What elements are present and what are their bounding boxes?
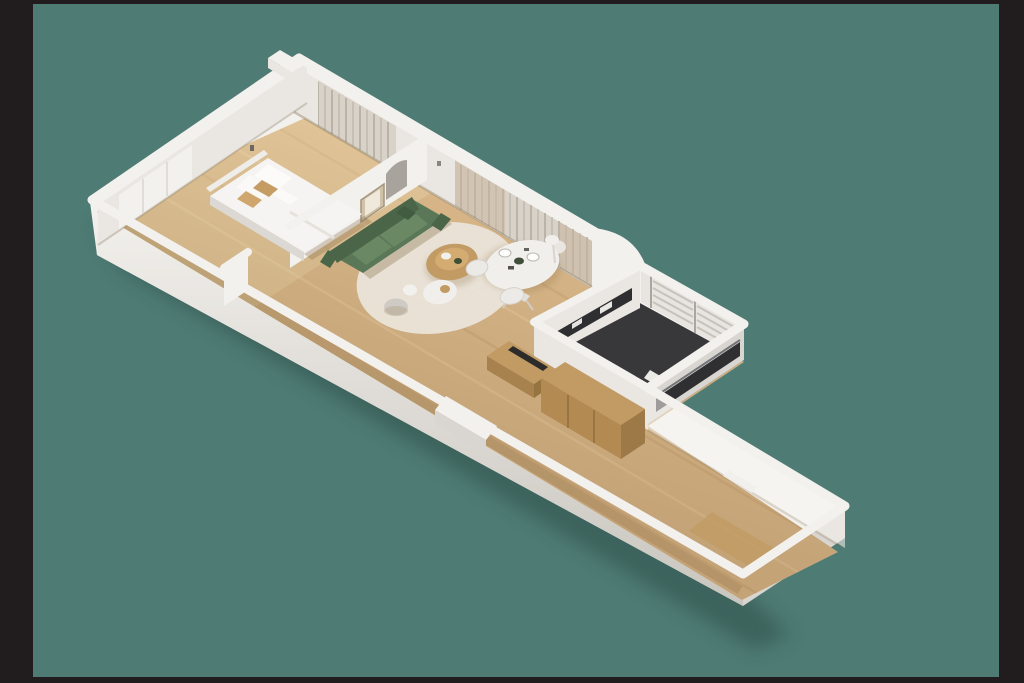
floor-plan-render (0, 0, 1024, 683)
green-bowl (514, 258, 524, 265)
ball-lamp (403, 285, 417, 296)
table-item (524, 248, 529, 251)
table-item (508, 266, 514, 270)
plate (527, 253, 539, 261)
wall-socket (437, 161, 441, 166)
screenshot-stage: 3D isometric render of a narrow one-bedr… (0, 0, 1024, 683)
light-switch (250, 145, 254, 151)
plate (499, 249, 511, 257)
